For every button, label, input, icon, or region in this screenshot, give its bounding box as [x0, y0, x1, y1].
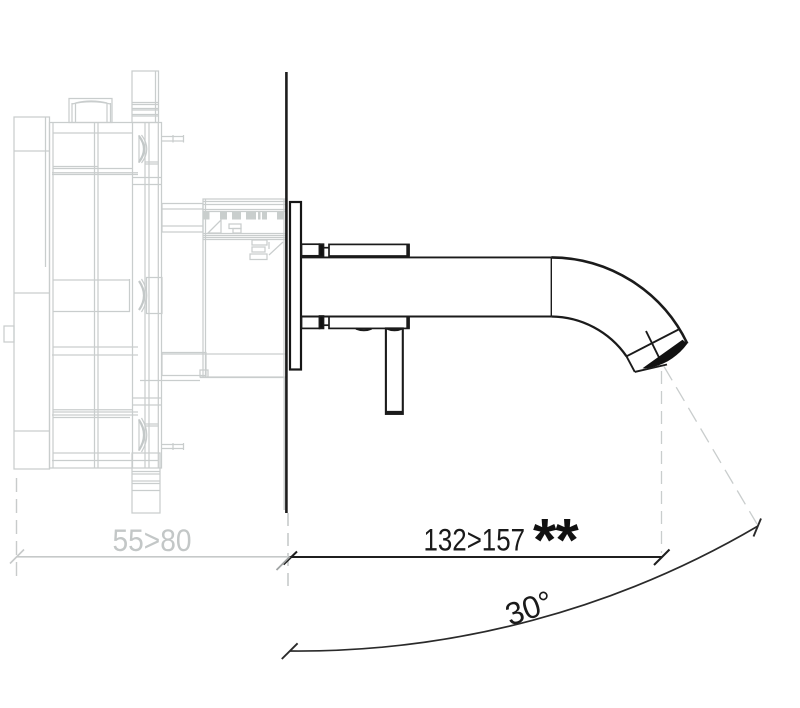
svg-text:**: ** — [533, 507, 579, 574]
svg-text:30°: 30° — [501, 583, 558, 633]
svg-text:55>80: 55>80 — [113, 522, 192, 558]
svg-text:132>157: 132>157 — [424, 522, 526, 558]
